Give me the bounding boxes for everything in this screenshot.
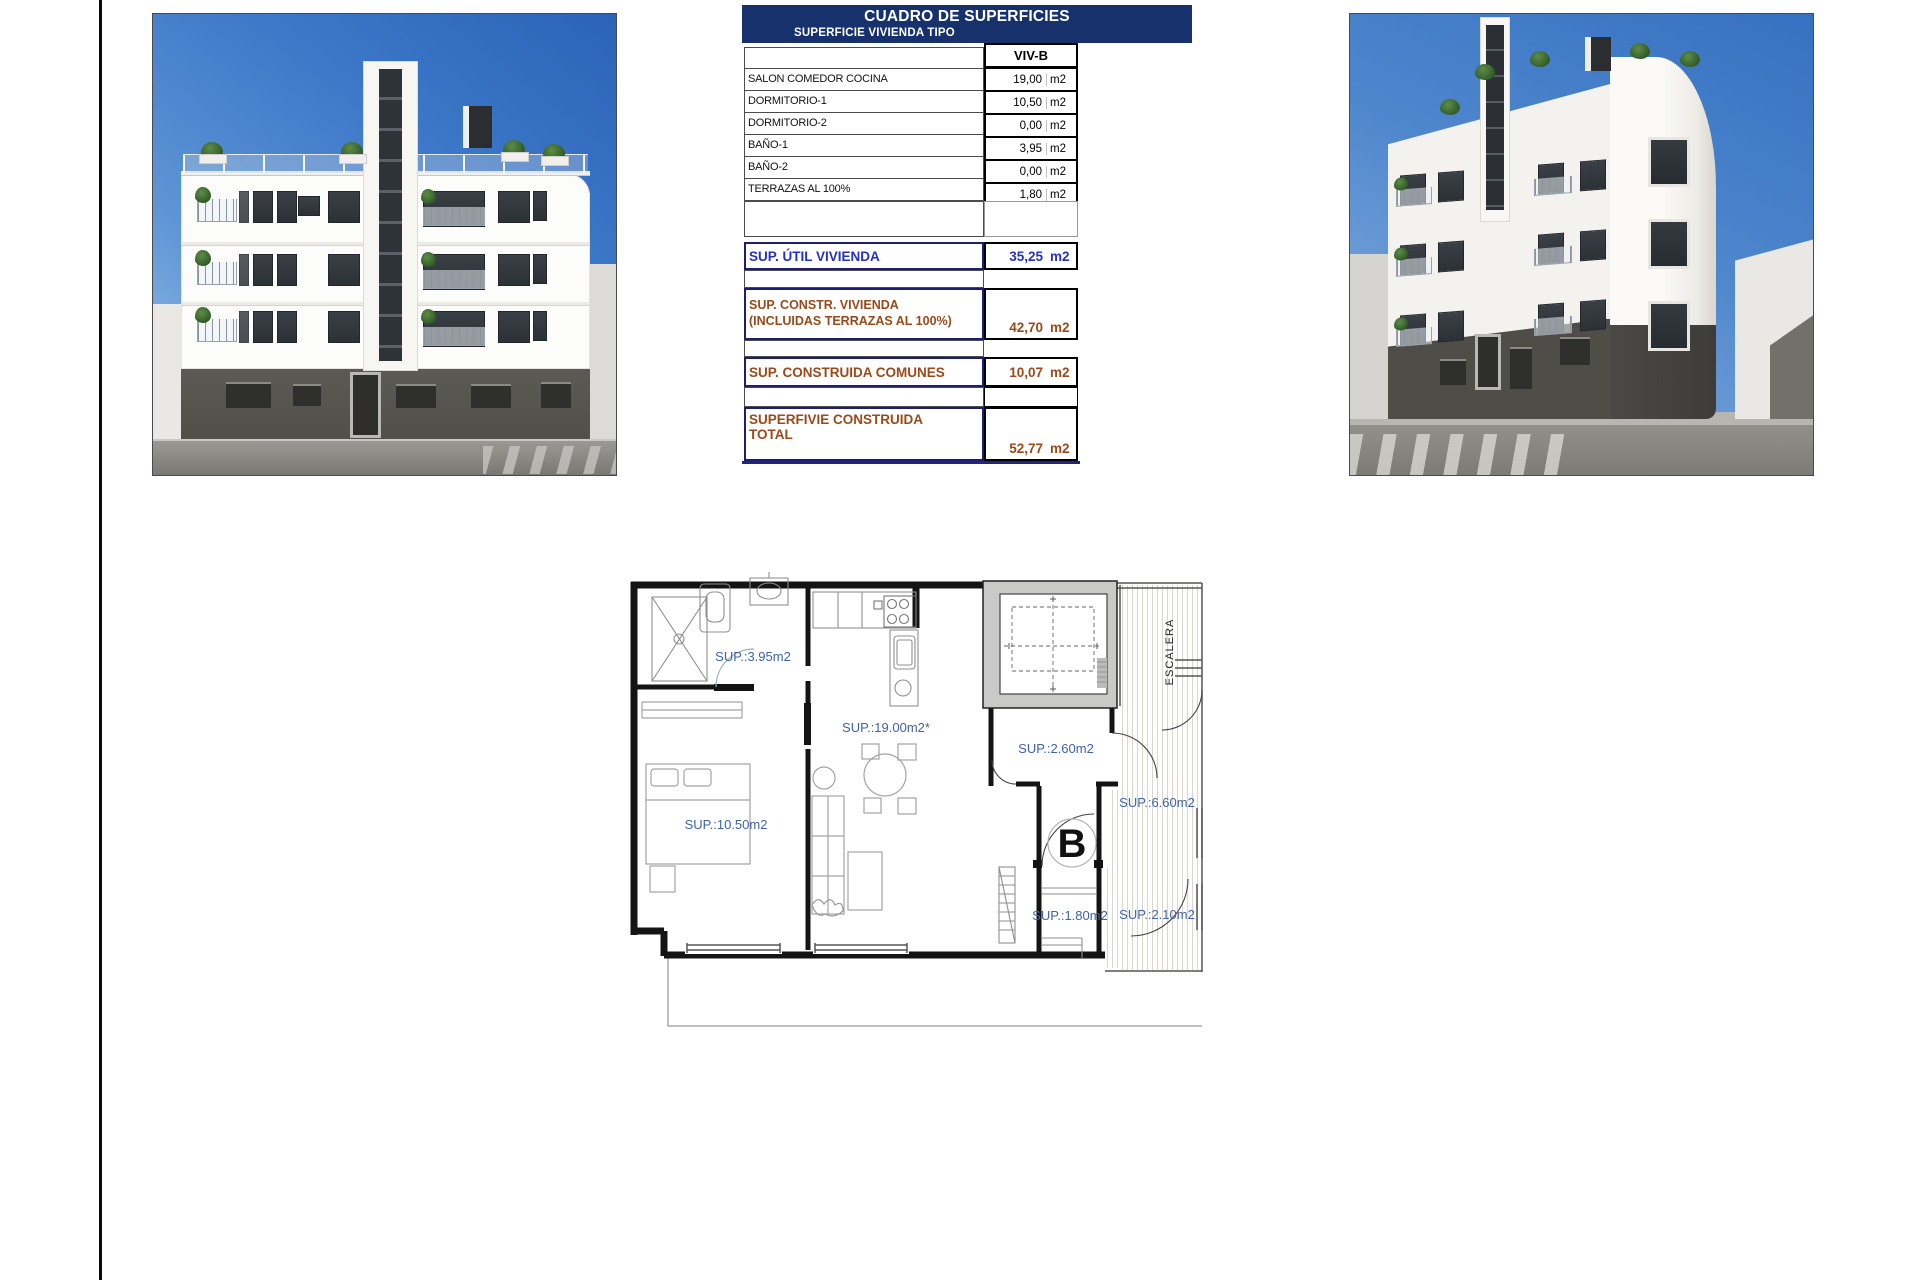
balcony-railing xyxy=(423,327,485,346)
roof-planter xyxy=(501,152,529,162)
room-label: DORMITORIO-2 xyxy=(745,113,983,135)
window xyxy=(328,254,360,286)
room-value: 3,95m2 xyxy=(986,138,1076,161)
window xyxy=(1580,159,1606,191)
room-value-column: 19,00m2 10,50m2 0,00m2 3,95m2 0,00m2 1,8… xyxy=(984,67,1078,207)
window xyxy=(533,191,547,221)
window xyxy=(298,196,320,216)
building-corner xyxy=(1380,29,1740,419)
room-label: BAÑO-2 xyxy=(745,157,983,179)
balcony-railing xyxy=(423,270,485,289)
balcony-plant xyxy=(195,187,211,203)
sum-comunes-label: SUP. CONSTRUIDA COMUNES xyxy=(744,357,984,387)
spacer-row xyxy=(744,201,984,237)
window xyxy=(1648,137,1690,187)
window xyxy=(1580,229,1606,261)
balcony-railing xyxy=(1534,316,1572,336)
elevator xyxy=(983,581,1117,708)
sum-util-label: SUP. ÚTIL VIVIENDA xyxy=(744,242,984,270)
room-value: 10,50m2 xyxy=(986,92,1076,115)
window xyxy=(328,191,360,223)
stair-tower-glazing xyxy=(379,69,402,361)
stair-tower xyxy=(1480,17,1510,222)
building-render-front xyxy=(152,13,617,476)
sum-total-value: 52,77m2 xyxy=(984,407,1078,461)
building-front xyxy=(181,154,590,439)
surface-table: CUADRO DE SUPERFICIES SUPERFICIE VIVIEND… xyxy=(742,5,1217,475)
unit-letter: B xyxy=(1058,822,1087,866)
ground-window xyxy=(1440,359,1466,385)
window xyxy=(498,311,530,343)
sum-comunes-value: 10,07m2 xyxy=(984,357,1078,387)
window xyxy=(277,311,297,343)
window xyxy=(253,191,273,223)
ground-window xyxy=(471,384,511,408)
balcony-plant xyxy=(421,252,436,267)
window xyxy=(1648,301,1690,351)
label-hall: SUP.:2.60m2 xyxy=(1018,741,1094,756)
window xyxy=(498,191,530,223)
window xyxy=(239,254,249,286)
roof-plant xyxy=(1475,64,1495,80)
window xyxy=(533,311,547,341)
label-terrace: SUP.:1.80m2 xyxy=(1032,908,1108,923)
window xyxy=(533,254,547,284)
window xyxy=(328,311,360,343)
sum-constr-label: SUP. CONSTR. VIVIENDA (INCLUIDAS TERRAZA… xyxy=(744,288,984,340)
entrance-door xyxy=(350,372,381,438)
label-header-cell xyxy=(745,48,983,69)
spacer-row xyxy=(744,340,984,357)
window xyxy=(239,311,249,343)
roof-planter xyxy=(339,154,367,164)
window xyxy=(498,254,530,286)
living-furniture xyxy=(812,744,916,916)
door-leaf xyxy=(804,703,811,745)
window xyxy=(1648,219,1690,269)
unit-column-header: VIV-B xyxy=(984,43,1078,68)
sum-total-label: SUPERFIVIE CONSTRUIDA TOTAL xyxy=(744,407,984,461)
unit-letter-badge: B xyxy=(1048,819,1096,867)
roof-plant xyxy=(1440,99,1460,115)
spacer-row xyxy=(744,387,984,407)
sum-util-value: 35,25m2 xyxy=(984,242,1078,270)
room-label-column: SALON COMEDOR COCINA DORMITORIO-1 DORMIT… xyxy=(744,47,984,201)
ground-window xyxy=(396,384,436,408)
table-subtitle: SUPERFICIE VIVIENDA TIPO xyxy=(742,27,1192,39)
balcony-railing xyxy=(1534,246,1572,266)
label-landing: SUP.:6.60m2 xyxy=(1119,795,1195,810)
spacer-row xyxy=(744,270,984,288)
roof-plant xyxy=(1680,51,1700,67)
plan-sheet: CUADRO DE SUPERFICIES SUPERFICIE VIVIEND… xyxy=(0,0,1920,1280)
ground-window xyxy=(1510,347,1532,389)
bedroom-furniture xyxy=(642,702,750,892)
room-label: TERRAZAS AL 100% xyxy=(745,179,983,200)
room-value: 19,00m2 xyxy=(986,69,1076,92)
entrance-door xyxy=(1475,334,1501,390)
balcony-plant xyxy=(195,250,211,266)
kitchen-fixtures xyxy=(813,592,918,706)
balcony-plant xyxy=(421,309,436,324)
chimney xyxy=(1585,37,1611,71)
window xyxy=(277,254,297,286)
roof-planter xyxy=(199,154,227,164)
window xyxy=(253,311,273,343)
roof-plant xyxy=(1530,51,1550,67)
facade-curved-corner xyxy=(1610,57,1716,419)
balcony-plant xyxy=(195,307,211,323)
room-value: 0,00m2 xyxy=(986,161,1076,184)
label-bedroom: SUP.:10.50m2 xyxy=(685,817,768,832)
window xyxy=(1438,170,1464,202)
balcony-plant xyxy=(421,189,436,204)
crosswalk xyxy=(483,446,616,474)
window xyxy=(1438,310,1464,342)
room-value: 0,00m2 xyxy=(986,115,1076,138)
balcony-railing xyxy=(1534,176,1572,196)
label-living: SUP.:19.00m2* xyxy=(842,720,930,735)
spacer-cell xyxy=(984,201,1078,237)
floor-plan: B SUP.:3.95m2 SUP.:19.00m2* SUP.:10.50m2… xyxy=(620,555,1240,1065)
label-bath: SUP.:3.95m2 xyxy=(715,649,791,664)
building-render-corner xyxy=(1349,13,1814,476)
ground-window xyxy=(293,384,321,406)
window xyxy=(1580,299,1606,331)
sum-constr-value: 42,70m2 xyxy=(984,288,1078,340)
sheet-border-line xyxy=(99,0,102,1280)
spacer-cell xyxy=(984,387,1078,407)
room-label: BAÑO-1 xyxy=(745,135,983,157)
chimney xyxy=(463,106,492,148)
door-leaf xyxy=(714,684,754,691)
crosswalk xyxy=(1350,434,1565,476)
window xyxy=(253,254,273,286)
window xyxy=(277,191,297,223)
stair-tower-glazing xyxy=(1486,25,1504,210)
table-bottom-rule xyxy=(742,461,1080,464)
balcony-railing xyxy=(423,207,485,226)
table-title: CUADRO DE SUPERFICIES xyxy=(742,5,1192,26)
neighbor-wall-right xyxy=(588,264,617,439)
table-header-bar: CUADRO DE SUPERFICIES SUPERFICIE VIVIEND… xyxy=(742,5,1192,43)
ground-window xyxy=(541,382,571,408)
ground-window xyxy=(1560,337,1590,365)
window xyxy=(1438,240,1464,272)
label-stairs: ESCALERA xyxy=(1164,619,1176,686)
roof-planter xyxy=(541,156,569,166)
roof-plant xyxy=(1630,43,1650,59)
ground-window xyxy=(226,382,271,408)
room-label: SALON COMEDOR COCINA xyxy=(745,69,983,91)
room-label: DORMITORIO-1 xyxy=(745,91,983,113)
label-landing2: SUP.:2.10m2 xyxy=(1119,907,1195,922)
stair-tower xyxy=(363,61,418,371)
window xyxy=(239,191,249,223)
neighbor-wall-left xyxy=(153,304,183,439)
